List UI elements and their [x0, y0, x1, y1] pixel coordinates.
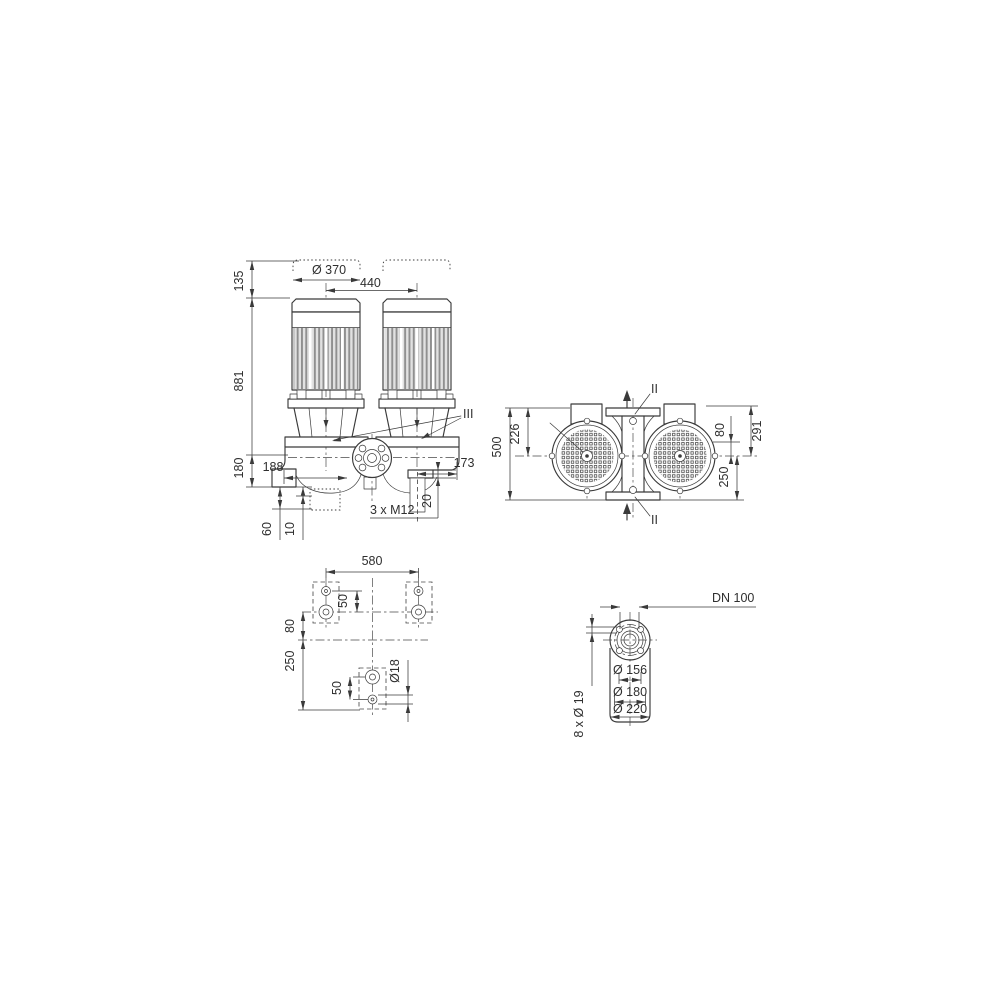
- fan-shroud-right: [642, 418, 718, 494]
- dim-anchor-hole-diameter: Ø18: [388, 659, 402, 683]
- dim-lower-hole-pitch: 50: [330, 681, 344, 695]
- dim-motor-spacing: 440: [360, 276, 381, 290]
- dim-port-to-port: 500: [490, 437, 504, 458]
- technical-drawing-canvas: Ø 370 440 135 881 180 188 173 20 3 x M12…: [0, 0, 1000, 1000]
- drain-plug: [364, 477, 376, 489]
- dim-nominal-diameter: DN 100: [712, 591, 754, 605]
- dim-axis-to-row: 80: [283, 619, 297, 633]
- discharge-flange: [606, 408, 660, 416]
- dim-overall-height: 881: [232, 371, 246, 392]
- dim-foot-plate-thickness: 20: [420, 494, 434, 508]
- fan-cover-clearance-outline-right: [383, 260, 450, 271]
- vent-screw-bottom: [630, 487, 637, 494]
- front-elevation-view: Ø 370 440 135 881 180 188 173 20 3 x M12…: [232, 260, 474, 540]
- section-label-upper: II: [651, 382, 658, 396]
- dim-anchor-spacing: 580: [362, 554, 383, 568]
- fan-shroud-left: [549, 418, 625, 494]
- dim-flange-od: Ø 220: [613, 702, 647, 716]
- dim-fan-cover-clearance: 135: [232, 271, 246, 292]
- flange-detail-view: DN 100 Ø 156 Ø 180 Ø 220 8 x Ø 19: [572, 591, 756, 738]
- dim-axis-to-flange: 250: [717, 467, 731, 488]
- dim-axis-to-branch: 80: [713, 423, 727, 437]
- dim-base-to-axis: 180: [232, 458, 246, 479]
- dim-axis-offset-right: 173: [454, 456, 475, 470]
- dim-row-spacing: 250: [283, 651, 297, 672]
- top-plan-view: II II 500 226 80 291 250: [490, 382, 764, 527]
- seal-section-callout: III: [463, 407, 473, 421]
- dim-motor-diameter: Ø 370: [312, 263, 346, 277]
- dim-bolt-circle: Ø 180: [613, 685, 647, 699]
- foundation-plan-view: 580 50 80 250 50 Ø18: [283, 554, 438, 722]
- motor-1: [288, 299, 364, 437]
- dim-tapped-holes: 3 x M12: [370, 503, 415, 517]
- foundation-dimensions: 580 50 80 250 50 Ø18: [283, 554, 419, 722]
- pump-dimensional-drawing-page: Ø 370 440 135 881 180 188 173 20 3 x M12…: [0, 0, 1000, 1000]
- motor1-mounting-flange: [288, 399, 364, 408]
- vent-screw-top: [630, 418, 637, 425]
- dim-foundation-depth: 60: [260, 522, 274, 536]
- dim-raised-face: Ø 156: [613, 663, 647, 677]
- dim-flange-to-axis: 226: [508, 424, 522, 445]
- flange-dimensions: DN 100 Ø 156 Ø 180 Ø 220 8 x Ø 19: [572, 591, 756, 738]
- section-label-lower: II: [651, 513, 658, 527]
- motor2-mounting-flange: [379, 399, 455, 408]
- dim-bolt-holes: 8 x Ø 19: [572, 690, 586, 737]
- dim-grout-offset: 10: [283, 522, 297, 536]
- top-view-dimensions: 500 226 80 291 250: [490, 406, 764, 500]
- anchor-pad-top-right: [406, 582, 432, 623]
- dim-axis-offset-left: 188: [263, 460, 284, 474]
- dim-upper-hole-pitch: 50: [336, 594, 350, 608]
- motor-2: [379, 299, 455, 437]
- dim-upper-span: 291: [750, 421, 764, 442]
